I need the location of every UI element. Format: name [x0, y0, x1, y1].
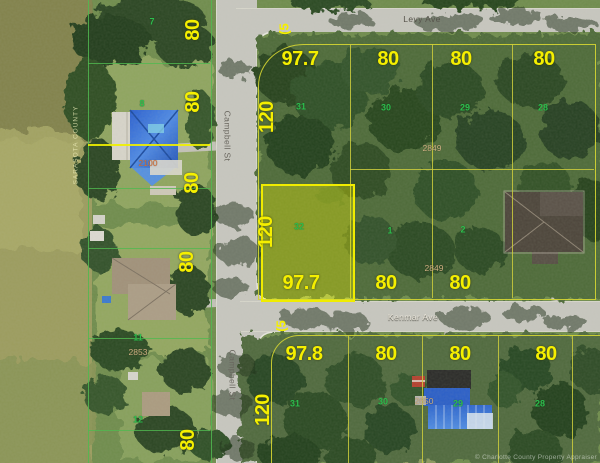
dimension-label: 80	[182, 172, 202, 193]
parcel-id: 2853	[129, 348, 148, 357]
lot-number: 29	[453, 400, 463, 409]
dimension-label: 80	[377, 49, 398, 69]
parcel-block-west	[88, 0, 212, 463]
street-label-levy-ave: Levy Ave	[403, 15, 441, 24]
parcel-id: 2650	[415, 397, 434, 406]
lot-number: 32	[294, 223, 304, 232]
lot-line-yellow	[88, 144, 210, 146]
parcel-id: 2100	[139, 159, 158, 168]
lot-line	[348, 335, 349, 463]
lot-line-green	[88, 338, 210, 339]
dimension-label: 80	[177, 251, 197, 272]
lot-line	[572, 335, 573, 463]
lot-line	[350, 169, 594, 170]
lot-line-green	[88, 63, 210, 64]
parcel-id: 2849	[425, 264, 444, 273]
lot-number: 31	[296, 103, 306, 112]
street-label-campbell-st: Campbell St	[228, 350, 237, 401]
lot-line	[498, 335, 499, 463]
left-watermark: SARASOTA COUNTY	[73, 106, 80, 185]
street-label-middle-ave: Kenmar Ave	[388, 313, 438, 322]
dimension-label: 80	[183, 19, 203, 40]
lot-number: 30	[381, 104, 391, 113]
road-width-marker: (5	[275, 320, 288, 332]
dimension-label: 97.7	[282, 49, 319, 69]
lot-number: 31	[290, 400, 300, 409]
dimension-label: 120	[257, 101, 277, 133]
lot-number: 28	[535, 400, 545, 409]
lot-number: 2	[460, 226, 465, 235]
lot-line	[512, 44, 513, 298]
parcel-map[interactable]: Levy Ave Kenmar Ave Campbell St Campbell…	[0, 0, 600, 463]
lot-line-green	[88, 248, 210, 249]
dimension-label: 97.7	[283, 273, 320, 293]
dimension-label: 120	[253, 394, 273, 426]
dimension-label: 80	[183, 91, 203, 112]
lot-number: 12	[133, 416, 143, 425]
lot-number: 11	[133, 334, 143, 343]
dimension-label: 80	[535, 344, 556, 364]
lot-number: 30	[378, 398, 388, 407]
lot-number: 8	[139, 100, 144, 109]
lot-number: 1	[387, 227, 392, 236]
dimension-label: 80	[178, 429, 198, 450]
street-label-campbell-st: Campbell St	[223, 111, 232, 162]
lot-number: 7	[149, 18, 154, 27]
dimension-label: 120	[256, 216, 276, 248]
lot-number: 28	[538, 104, 548, 113]
road-width-marker: (5	[278, 23, 291, 35]
copyright-watermark: © Charlotte County Property Appraiser	[475, 454, 597, 461]
lot-number: 29	[460, 104, 470, 113]
dimension-label: 80	[449, 273, 470, 293]
parcel-id: 2849	[423, 144, 442, 153]
dimension-label: 80	[450, 49, 471, 69]
dimension-label: 80	[375, 273, 396, 293]
dimension-label: 80	[375, 344, 396, 364]
dimension-label: 80	[533, 49, 554, 69]
dimension-label: 80	[449, 344, 470, 364]
dimension-label: 97.8	[286, 344, 323, 364]
lot-line	[432, 44, 433, 298]
